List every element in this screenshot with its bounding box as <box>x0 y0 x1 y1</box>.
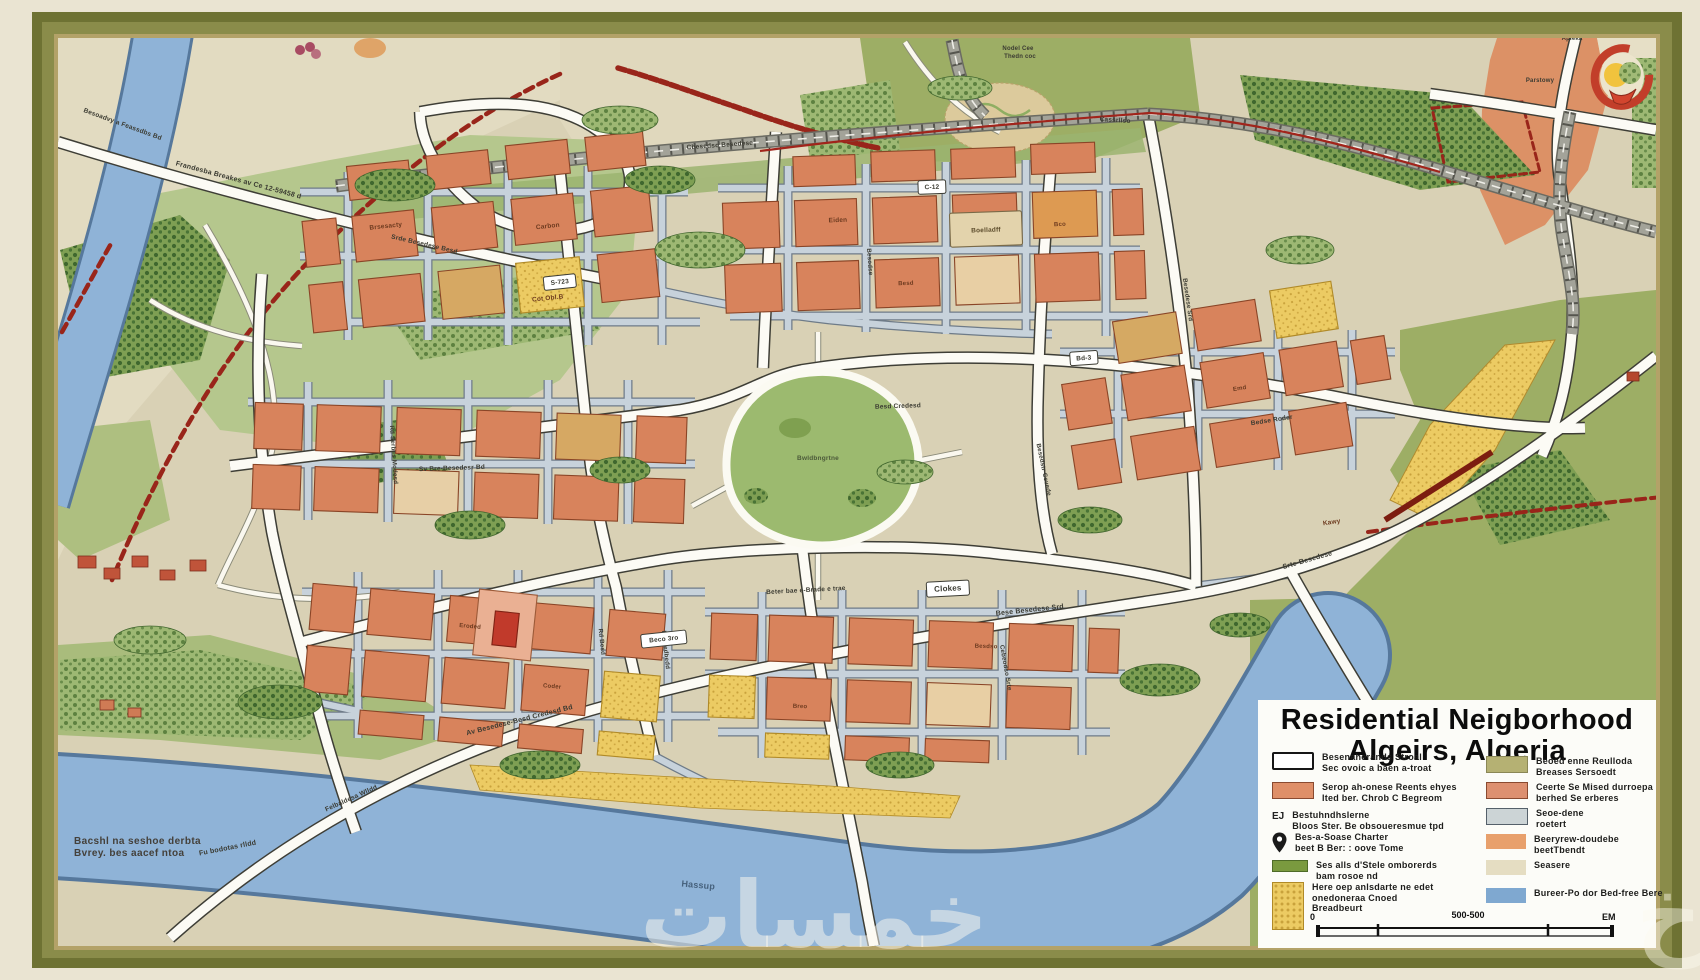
legend-item: Seasere <box>1486 860 1570 875</box>
scale-mid-label: 500-500 <box>1418 910 1518 920</box>
legend-item: EJBestuhndhslerneBloos Ster. Be obsouere… <box>1272 810 1444 831</box>
fill-swatch <box>1486 808 1528 825</box>
map-label: Bwldbngrtne <box>797 455 839 462</box>
fill-swatch <box>1486 888 1526 903</box>
legend-item: Bes-a-Soase Charterbeet B Ber: : oove To… <box>1272 832 1404 853</box>
legend-item-label: Ses alls d'Stele omborerdsbam rosoe nd <box>1316 860 1437 881</box>
road-shield-label: Bd-3 <box>1070 350 1099 365</box>
svg-text:Besd: Besd <box>898 281 914 288</box>
legend-item-label: Seasere <box>1534 860 1570 871</box>
bar-swatch <box>1272 860 1308 872</box>
svg-text:Boelladff: Boelladff <box>971 226 1001 234</box>
credits-line1: Bacshl na seshoe derbta <box>74 836 201 848</box>
map-label: Besdso <box>974 644 997 651</box>
scale-bar <box>1316 922 1616 944</box>
map-credits: Bacshl na seshoe derbta Bvrey. bes aacef… <box>74 836 201 860</box>
map-label: Bco <box>1054 222 1066 228</box>
legend-item-label: Besenaherands StroalSec ovoic a baen a-t… <box>1322 752 1432 773</box>
fill-swatch <box>1272 782 1314 799</box>
legend-item-label: Bes-a-Soase Charterbeet B Ber: : oove To… <box>1295 832 1404 853</box>
legend-item: Beoed enne ReullodaBreases Sersoedt <box>1486 756 1632 777</box>
legend-item: Ceerte Se Mised durroepaberhed Se erbere… <box>1486 782 1653 803</box>
map-label: Nodel Cee <box>1002 46 1034 52</box>
fill-swatch <box>1486 782 1528 799</box>
legend-item: Serop ah-onese Reents ehyesIted ber. Chr… <box>1272 782 1457 803</box>
legend-item-label: BestuhndhslerneBloos Ster. Be obsoueresm… <box>1292 810 1444 831</box>
legend-item: Bureer-Po dor Bed-free Bere <box>1486 888 1663 903</box>
legend-panel: Residential Neigborhood Algeirs, Algeria… <box>1258 700 1656 948</box>
dots-swatch <box>1272 882 1304 930</box>
svg-text:Nodel Cee: Nodel Cee <box>1002 46 1034 52</box>
map-label: Besd <box>898 281 914 288</box>
map-label: Thedn coc <box>1004 54 1036 60</box>
svg-text:Parstowy: Parstowy <box>1526 78 1555 84</box>
legend-item-label: Beoed enne ReullodaBreases Sersoedt <box>1536 756 1632 777</box>
svg-text:Bd-3: Bd-3 <box>1076 354 1092 362</box>
scale-zero-label: 0 <box>1310 912 1315 922</box>
outline-swatch <box>1272 752 1314 770</box>
svg-text:Bco: Bco <box>1054 222 1066 228</box>
scale-end-label: EM <box>1602 912 1616 922</box>
text-symbol: EJ <box>1272 810 1284 822</box>
legend-item-label: Seoe-deneroetert <box>1536 808 1584 829</box>
legend-item: Ses alls d'Stele omborerdsbam rosoe nd <box>1272 860 1437 881</box>
legend-item: Beeryrew-doudebebeetTbendt <box>1486 834 1619 855</box>
legend-item: Seoe-deneroetert <box>1486 808 1584 829</box>
legend-item-label: Ceerte Se Mised durroepaberhed Se erbere… <box>1536 782 1653 803</box>
road-shield-label: C-12 <box>918 180 946 194</box>
fill-swatch <box>1486 834 1526 849</box>
svg-text:Besdso: Besdso <box>974 644 997 651</box>
fill-swatch <box>1486 860 1526 875</box>
map-label: Eiden <box>828 217 847 225</box>
map-title-line1: Residential Neigborhood <box>1258 705 1656 736</box>
credits-line2: Bvrey. bes aacef ntoa <box>74 848 201 860</box>
svg-text:Thedn coc: Thedn coc <box>1004 54 1036 60</box>
legend-item-label: Serop ah-onese Reents ehyesIted ber. Chr… <box>1322 782 1457 803</box>
road-shield-label: Clokes <box>926 580 969 597</box>
map-label: Breo <box>793 704 808 711</box>
svg-text:Breo: Breo <box>793 704 808 711</box>
map-pin-icon <box>1272 832 1287 853</box>
legend-item-label: Beeryrew-doudebebeetTbendt <box>1534 834 1619 855</box>
map-label: Boelladff <box>971 226 1001 234</box>
legend-item-label: Here oep anlsdarte ne edetonedoneraa Cno… <box>1312 882 1434 914</box>
svg-text:Clokes: Clokes <box>934 583 962 593</box>
legend-item: Besenaherands StroalSec ovoic a baen a-t… <box>1272 752 1432 773</box>
svg-text:Bwldbngrtne: Bwldbngrtne <box>797 455 839 462</box>
road-shield-label: S-723 <box>543 274 576 291</box>
svg-text:C-12: C-12 <box>924 184 939 192</box>
fill-swatch <box>1486 756 1528 773</box>
map-label: Parstowy <box>1526 78 1555 84</box>
svg-text:Eiden: Eiden <box>828 217 847 225</box>
map-page: Frandesba Breakes av Ce 12-59458 dBesoad… <box>0 0 1700 980</box>
legend-item-label: Bureer-Po dor Bed-free Bere <box>1534 888 1663 899</box>
